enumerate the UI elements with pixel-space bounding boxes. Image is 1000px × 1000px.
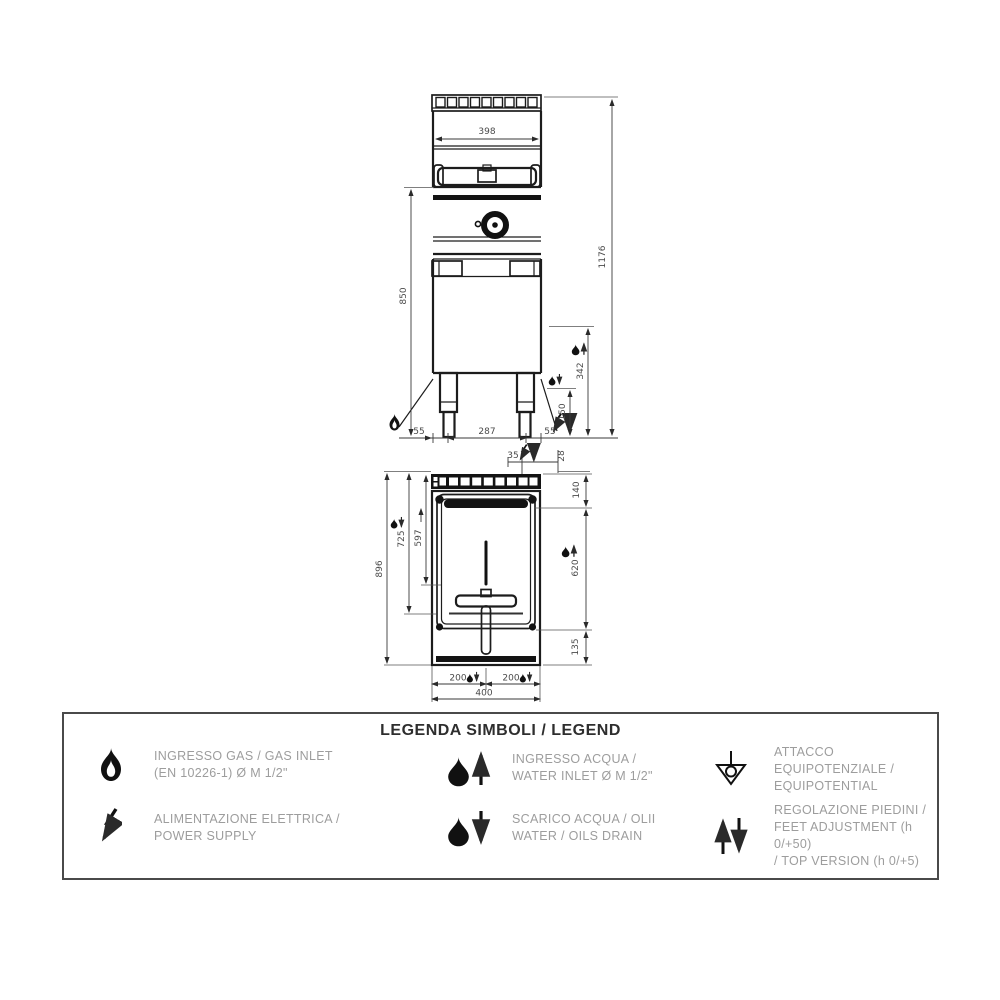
drain-marker-icon <box>467 672 477 683</box>
dim-plan-width-total: 400 <box>475 689 492 699</box>
dim-plan-inlet-depth: 597 <box>414 529 424 546</box>
dim-front-foot-right: 55 <box>544 427 555 437</box>
dim-plan-water-depth: 620 <box>571 559 581 576</box>
legend-item-power-supply: ALIMENTAZIONE ELETTRICA / POWER SUPPLY <box>84 808 340 848</box>
dim-front-height-work: 850 <box>399 287 409 304</box>
water-drain-icon <box>442 808 496 848</box>
legend-item-water-inlet: INGRESSO ACQUA / WATER INLET Ø M 1/2" <box>442 748 653 788</box>
legend-item-water-drain: SCARICO ACQUA / OLII WATER / OILS DRAIN <box>442 808 656 848</box>
datasheet-page: 398 850 1176 342 150 55 287 55 <box>0 0 1000 1000</box>
dim-plan-drain-left: 200 <box>449 674 466 684</box>
legend-item-text: ALIMENTAZIONE ELETTRICA / POWER SUPPLY <box>154 811 340 845</box>
drain-marker-icon <box>549 374 560 385</box>
lightning-icon <box>84 808 138 848</box>
legend-item-text: ATTACCO EQUIPOTENZIALE / EQUIPOTENTIAL <box>774 744 937 795</box>
dim-plan-drain-depth: 725 <box>397 530 407 547</box>
front-door <box>432 259 541 373</box>
feet-adjustment-icon <box>704 814 758 858</box>
front-top-rail <box>432 95 541 111</box>
plan-body <box>432 491 540 665</box>
dim-plan-drain-right: 200 <box>502 674 519 684</box>
gas-inlet-flame-icon <box>390 414 400 431</box>
dim-plan-top-depth: 140 <box>572 481 582 498</box>
dim-front-water-inlet-height: 342 <box>576 362 586 379</box>
dim-front-height-total: 1176 <box>598 245 608 268</box>
drain-marker-icon <box>520 672 530 683</box>
plan-view <box>431 474 541 665</box>
legend-item-feet-adjustment: REGOLAZIONE PIEDINI / FEET ADJUSTMENT (h… <box>704 802 937 870</box>
legend-item-gas-inlet: INGRESSO GAS / GAS INLET (EN 10226-1) Ø … <box>84 748 333 782</box>
pilot-light <box>475 221 480 226</box>
technical-drawing: 398 850 1176 342 150 55 287 55 <box>0 0 1000 710</box>
water-inlet-marker-icon <box>562 546 574 558</box>
legend-item-text: REGOLAZIONE PIEDINI / FEET ADJUSTMENT (h… <box>774 802 937 870</box>
dim-plan-elec-offset: 35 <box>507 451 518 461</box>
dim-front-width-top: 398 <box>478 127 495 137</box>
front-control-panel <box>433 187 541 259</box>
legend-title: LEGENDA SIMBOLI / LEGEND <box>64 722 937 740</box>
front-view <box>390 95 570 437</box>
equipotential-icon <box>704 751 758 789</box>
legend-box: LEGENDA SIMBOLI / LEGEND INGRESSO GAS / … <box>62 712 939 880</box>
dim-front-foot-left: 55 <box>413 427 424 437</box>
dim-plan-elec-edge: 28 <box>557 450 567 462</box>
plan-basket-handle <box>444 500 528 509</box>
dim-plan-bottom-depth: 135 <box>571 638 581 655</box>
power-supply-icon <box>521 445 534 460</box>
legend-item-text: SCARICO ACQUA / OLII WATER / OILS DRAIN <box>512 811 656 845</box>
front-upper-panel <box>433 111 541 187</box>
water-inlet-icon <box>442 748 496 788</box>
dim-front-drain-height: 150 <box>558 403 568 420</box>
dim-plan-depth-total: 896 <box>375 560 385 577</box>
flame-icon <box>84 748 138 782</box>
dim-front-foot-span: 287 <box>478 427 495 437</box>
legend-item-equipotential: ATTACCO EQUIPOTENZIALE / EQUIPOTENTIAL <box>704 744 937 795</box>
drain-marker-icon <box>391 517 402 528</box>
legend-item-text: INGRESSO ACQUA / WATER INLET Ø M 1/2" <box>512 751 653 785</box>
legend-item-text: INGRESSO GAS / GAS INLET (EN 10226-1) Ø … <box>154 748 333 782</box>
front-basket-lid <box>434 165 540 187</box>
water-inlet-marker-icon <box>572 344 584 356</box>
plan-top-rail <box>431 474 541 489</box>
